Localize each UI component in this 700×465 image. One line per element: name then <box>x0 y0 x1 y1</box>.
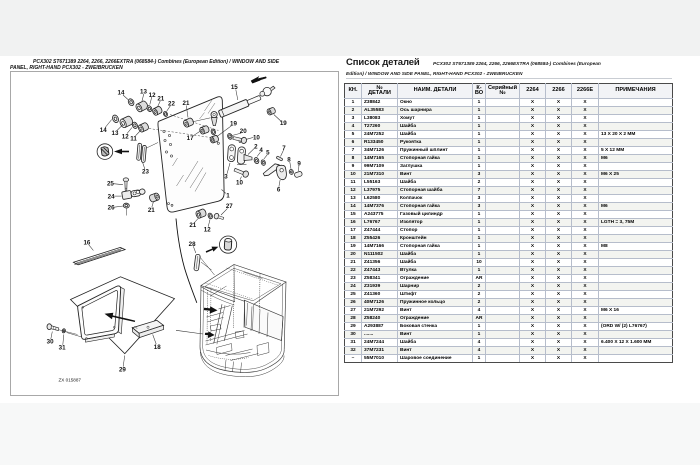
svg-text:3: 3 <box>224 174 228 181</box>
svg-text:18: 18 <box>153 344 160 351</box>
svg-text:26: 26 <box>107 205 114 212</box>
svg-text:21: 21 <box>147 207 154 214</box>
svg-text:8: 8 <box>287 157 291 164</box>
svg-text:20: 20 <box>239 128 246 135</box>
svg-text:7: 7 <box>282 145 286 152</box>
svg-text:19: 19 <box>279 120 286 127</box>
svg-text:2: 2 <box>254 143 258 150</box>
svg-text:6: 6 <box>276 186 280 193</box>
svg-text:10: 10 <box>252 134 259 141</box>
svg-text:24: 24 <box>107 193 114 200</box>
svg-text:11: 11 <box>130 136 137 143</box>
svg-text:13: 13 <box>111 130 118 137</box>
svg-text:12: 12 <box>148 92 155 99</box>
svg-text:21: 21 <box>157 96 164 103</box>
svg-text:23: 23 <box>142 169 149 176</box>
svg-text:29: 29 <box>118 366 125 373</box>
svg-text:28: 28 <box>188 241 195 248</box>
svg-text:12: 12 <box>121 133 128 140</box>
svg-text:22: 22 <box>168 101 175 108</box>
svg-text:12: 12 <box>203 226 210 233</box>
svg-text:21: 21 <box>189 222 196 229</box>
svg-text:30: 30 <box>46 339 53 346</box>
svg-text:19: 19 <box>230 120 237 127</box>
svg-text:9: 9 <box>297 160 301 167</box>
svg-text:ZX 015887: ZX 015887 <box>58 378 81 383</box>
svg-text:31: 31 <box>58 345 65 352</box>
svg-text:16: 16 <box>83 240 90 247</box>
svg-text:14: 14 <box>99 127 106 134</box>
svg-text:25: 25 <box>106 181 113 188</box>
svg-text:15: 15 <box>230 84 237 91</box>
svg-text:10: 10 <box>236 179 243 186</box>
svg-text:1: 1 <box>226 193 230 200</box>
